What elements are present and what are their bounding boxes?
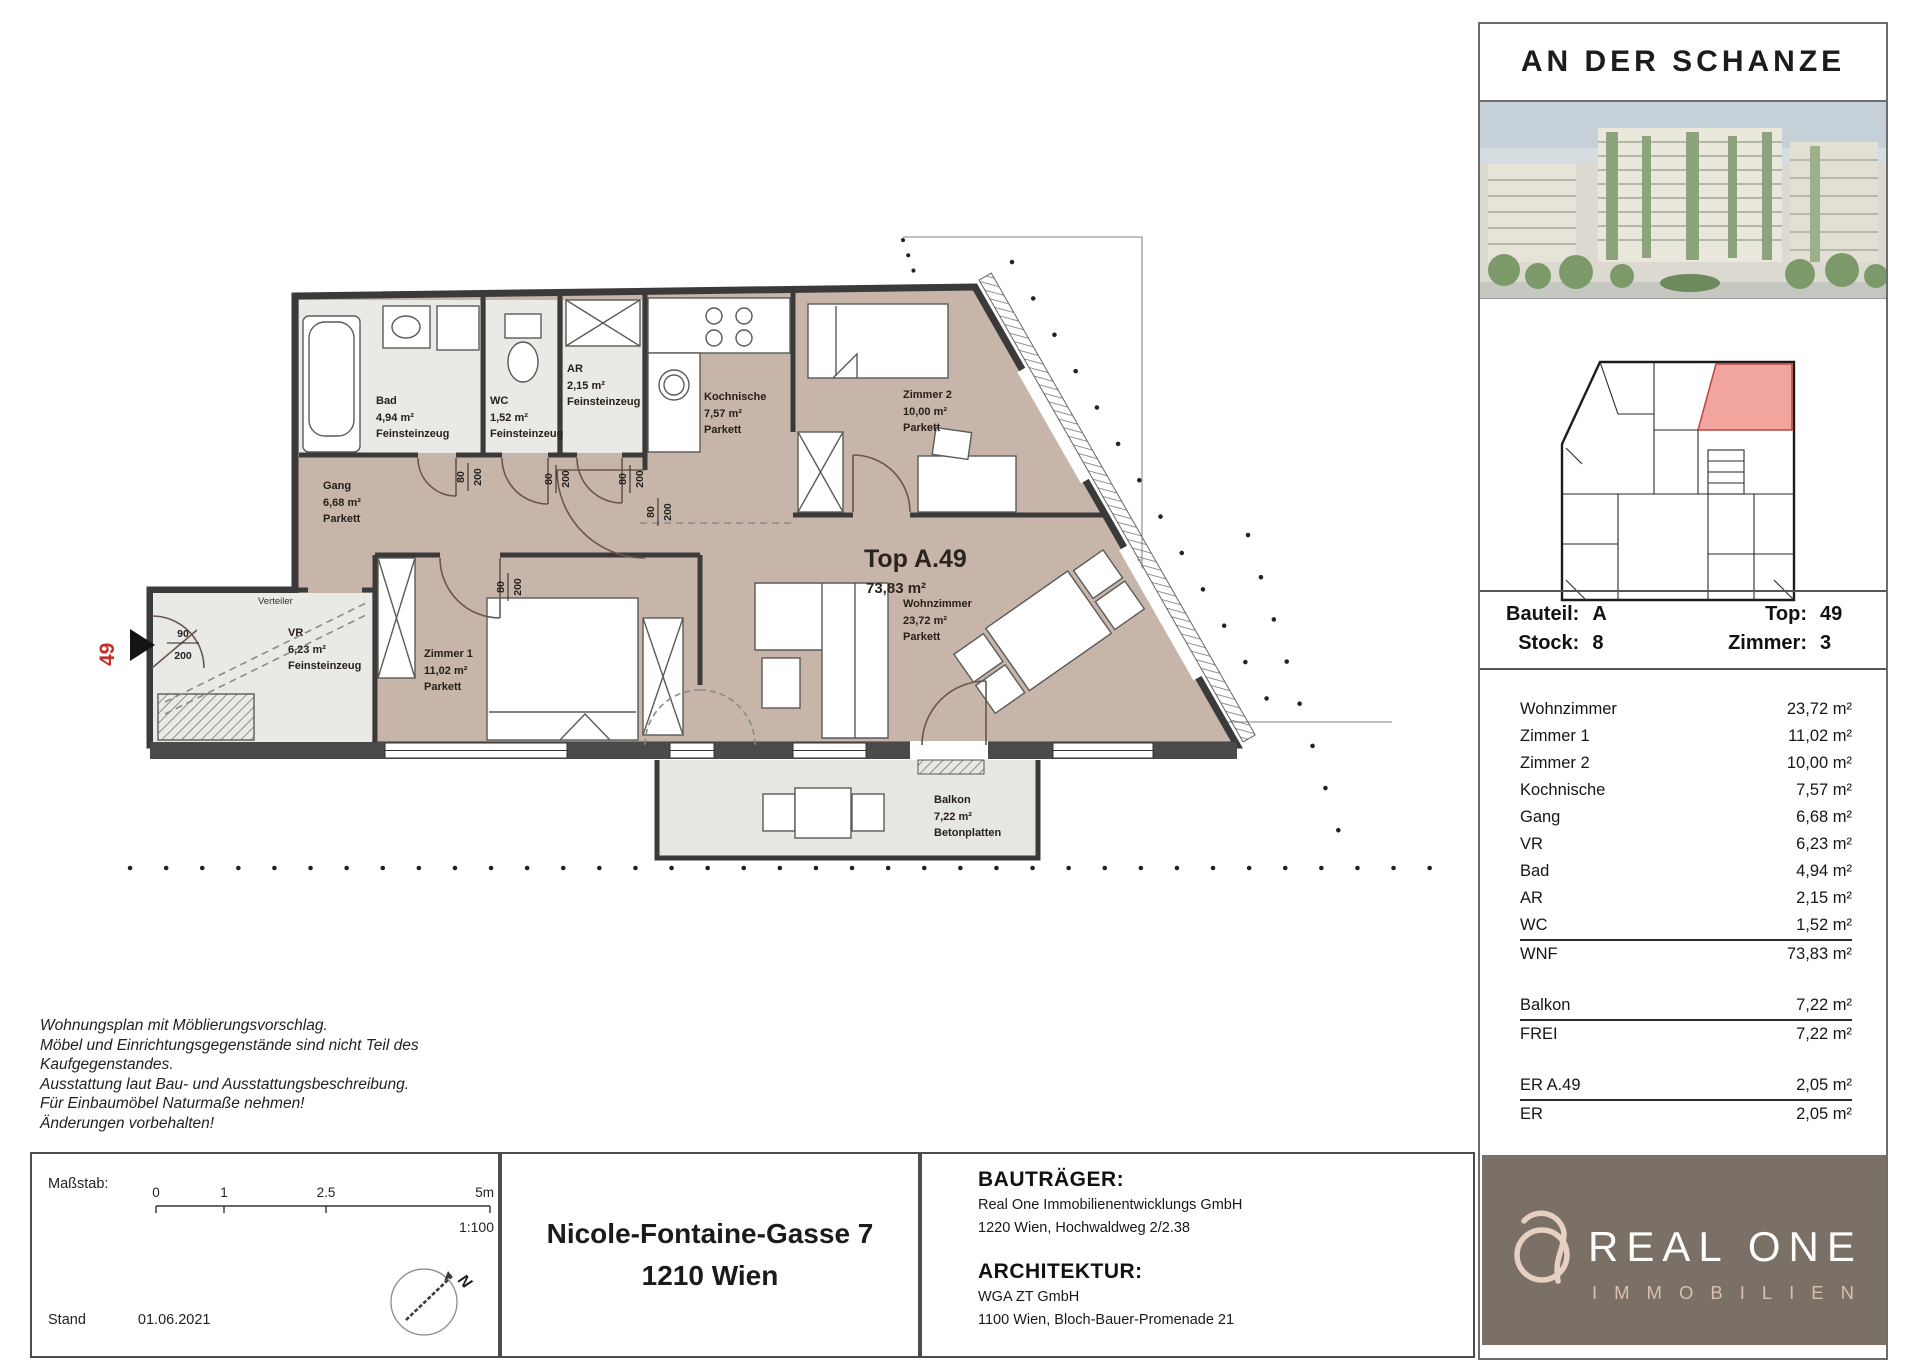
dotted-top — [903, 240, 916, 278]
project-title: AN DER SCHANZE — [1480, 24, 1886, 102]
disclaimer-line: Wohnungsplan mit Möblierungsvorschlag. — [40, 1016, 419, 1036]
zimmer-value: 3 — [1820, 632, 1860, 657]
svg-text:Parkett: Parkett — [704, 424, 742, 436]
entrance-marker: 49 — [96, 629, 155, 666]
room-label-gang: Gang — [323, 480, 351, 492]
room-label-ar: AR — [567, 363, 583, 375]
realone-logo: REAL ONE IMMOBILIEN — [1482, 1155, 1886, 1345]
svg-text:7,57 m²: 7,57 m² — [704, 408, 742, 420]
svg-text:4,94 m²: 4,94 m² — [376, 412, 414, 424]
sidebar: AN DER SCHANZE — [1478, 22, 1888, 1360]
table-row: Gang6,68 m² — [1520, 804, 1852, 831]
logo-subtitle: IMMOBILIEN — [1592, 1282, 1871, 1303]
bed-zimmer1 — [487, 598, 638, 740]
architecture-address: 1100 Wien, Bloch-Bauer-Promenade 21 — [978, 1311, 1453, 1330]
svg-text:1,52 m²: 1,52 m² — [490, 412, 528, 424]
table-row-er: ER2,05 m² — [1520, 1101, 1852, 1128]
room-label-balkon: Balkon — [934, 794, 971, 806]
svg-text:2,15 m²: 2,15 m² — [567, 380, 605, 392]
scale-ratio: 1:100 — [459, 1219, 494, 1235]
room-label-zimmer1: Zimmer 1 — [424, 648, 473, 660]
svg-text:200: 200 — [512, 578, 524, 596]
architecture-heading: ARCHITEKTUR: — [978, 1260, 1453, 1284]
balcony-threshold — [918, 760, 984, 774]
realone-logo-icon — [1517, 1213, 1567, 1281]
door-dim-height: 200 — [472, 468, 484, 486]
svg-text:Feinsteinzeug: Feinsteinzeug — [376, 428, 449, 440]
building-render-image — [1480, 102, 1886, 299]
keyplan-image — [1558, 354, 1798, 606]
bauteil-value: A — [1592, 603, 1632, 628]
north-compass-icon: N — [362, 1256, 492, 1356]
svg-text:80: 80 — [495, 581, 507, 593]
svg-text:80: 80 — [645, 506, 657, 518]
svg-text:Feinsteinzeug: Feinsteinzeug — [567, 396, 640, 408]
stock-label: Stock: — [1506, 632, 1579, 657]
dotted-right — [1248, 535, 1345, 852]
svg-text:7,22 m²: 7,22 m² — [934, 811, 972, 823]
table-row: Bad4,94 m² — [1520, 858, 1852, 885]
disclaimer-line: Möbel und Einrichtungsgegenstände sind n… — [40, 1036, 419, 1056]
table-row: AR2,15 m² — [1520, 885, 1852, 912]
table-row: WC1,52 m² — [1520, 912, 1852, 939]
svg-text:Parkett: Parkett — [903, 631, 941, 643]
room-label-wohnzimmer: Wohnzimmer — [903, 598, 973, 610]
stand-label: Stand — [48, 1312, 86, 1328]
desk-zimmer2 — [918, 456, 1016, 512]
room-label-vr: VR — [288, 627, 303, 639]
unit-title: Top A.49 — [864, 545, 967, 573]
svg-text:23,72 m²: 23,72 m² — [903, 615, 947, 627]
floor-plan: 80200 80200 80200 80200 80200 90 200 Bad… — [0, 0, 1475, 1000]
bauteil-label: Bauteil: — [1506, 603, 1579, 628]
svg-text:Betonplatten: Betonplatten — [934, 827, 1002, 839]
architecture-name: WGA ZT GmbH — [978, 1288, 1453, 1307]
table-row-balkon: Balkon7,22 m² — [1520, 992, 1852, 1019]
scale-tick: 5m — [475, 1185, 494, 1200]
table-row: Zimmer 111,02 m² — [1520, 723, 1852, 750]
developer-heading: BAUTRÄGER: — [978, 1168, 1453, 1192]
svg-text:6,23 m²: 6,23 m² — [288, 644, 326, 656]
closet-zimmer1 — [378, 558, 415, 678]
table-row: VR6,23 m² — [1520, 831, 1852, 858]
svg-text:Parkett: Parkett — [903, 422, 941, 434]
balcony-chair-left — [763, 794, 795, 831]
room-label-bad: Bad — [376, 395, 397, 407]
balcony — [657, 760, 1038, 858]
room-label-wc: WC — [490, 395, 508, 407]
disclaimer-line: Änderungen vorbehalten! — [40, 1114, 419, 1134]
table-row-frei: FREI7,22 m² — [1520, 1021, 1852, 1048]
room-label-kochnische: Kochnische — [704, 391, 766, 403]
toilet-cistern — [505, 314, 541, 338]
verteiler-label: Verteiler — [258, 596, 293, 607]
disclaimer-line: Ausstattung laut Bau- und Ausstattungsbe… — [40, 1075, 419, 1095]
stock-value: 8 — [1592, 632, 1632, 657]
zimmer-label: Zimmer: — [1728, 632, 1807, 657]
table-row: Wohnzimmer23,72 m² — [1520, 696, 1852, 723]
developer-name: Real One Immobilienentwicklungs GmbH — [978, 1196, 1453, 1215]
svg-text:Parkett: Parkett — [323, 513, 361, 525]
scale-tick: 0 — [152, 1185, 160, 1200]
svg-text:200: 200 — [662, 503, 674, 521]
svg-text:11,02 m²: 11,02 m² — [424, 665, 468, 677]
svg-text:90: 90 — [177, 628, 189, 640]
wardrobe-zimmer2 — [798, 432, 843, 512]
balcony-furniture — [763, 788, 884, 838]
table-row-wnf: WNF73,83 m² — [1520, 941, 1852, 968]
ar-cabinet — [566, 300, 640, 346]
scale-tick: 2.5 — [317, 1185, 336, 1200]
door-dim-width: 80 — [455, 471, 467, 483]
washing-machine — [437, 306, 479, 350]
developer-address: 1220 Wien, Hochwaldweg 2/2.38 — [978, 1219, 1453, 1238]
disclaimer: Wohnungsplan mit Möblierungsvorschlag. M… — [40, 1016, 419, 1133]
developer-box: BAUTRÄGER: Real One Immobilienentwicklun… — [920, 1152, 1475, 1358]
side-table — [762, 658, 800, 708]
address-line1: Nicole-Fontaine-Gasse 7 — [547, 1218, 874, 1250]
svg-text:6,68 m²: 6,68 m² — [323, 497, 361, 509]
unit-info: Bauteil: A Stock: 8 Top: 49 Zimmer: 3 — [1480, 590, 1886, 670]
svg-text:200: 200 — [560, 470, 572, 488]
room-label-zimmer2: Zimmer 2 — [903, 389, 952, 401]
svg-text:Parkett: Parkett — [424, 681, 462, 693]
stand-date: 01.06.2021 — [138, 1312, 211, 1328]
logo-brand: REAL ONE — [1588, 1223, 1863, 1270]
balcony-chair-right — [852, 794, 884, 831]
unit-area: 73,83 m² — [866, 580, 926, 597]
svg-text:80: 80 — [543, 473, 555, 485]
toilet — [508, 342, 538, 382]
disclaimer-line: Kaufgegenstandes. — [40, 1055, 419, 1075]
svg-text:Feinsteinzeug: Feinsteinzeug — [490, 428, 563, 440]
scale-box: Maßstab: 0 1 2.5 5m 1:100 Stand01.06.202… — [30, 1152, 500, 1358]
address-line2: 1210 Wien — [642, 1260, 779, 1292]
vr-shoe-rack — [158, 694, 254, 740]
bed-zimmer2 — [808, 304, 948, 378]
top-value: 49 — [1820, 603, 1860, 628]
svg-text:10,00 m²: 10,00 m² — [903, 406, 947, 418]
table-row: Zimmer 210,00 m² — [1520, 750, 1852, 777]
disclaimer-line: Für Einbaumöbel Naturmaße nehmen! — [40, 1094, 419, 1114]
stand-row: Stand01.06.2021 — [48, 1312, 210, 1328]
entrance-number: 49 — [96, 643, 119, 666]
wardrobe-zimmer1 — [643, 618, 683, 735]
top-label: Top: — [1728, 603, 1807, 628]
area-table: Wohnzimmer23,72 m² Zimmer 111,02 m² Zimm… — [1520, 696, 1852, 1128]
table-row-er-a49: ER A.492,05 m² — [1520, 1072, 1852, 1099]
balcony-table — [795, 788, 851, 838]
address-box: Nicole-Fontaine-Gasse 7 1210 Wien — [500, 1152, 920, 1358]
svg-text:200: 200 — [634, 470, 646, 488]
svg-text:Feinsteinzeug: Feinsteinzeug — [288, 660, 361, 672]
svg-text:80: 80 — [617, 473, 629, 485]
north-label: N — [454, 1272, 475, 1293]
scale-tick: 1 — [220, 1185, 228, 1200]
svg-text:200: 200 — [174, 650, 192, 662]
scale-bar: 0 1 2.5 5m 1:100 — [32, 1180, 498, 1240]
table-row: Kochnische7,57 m² — [1520, 777, 1852, 804]
